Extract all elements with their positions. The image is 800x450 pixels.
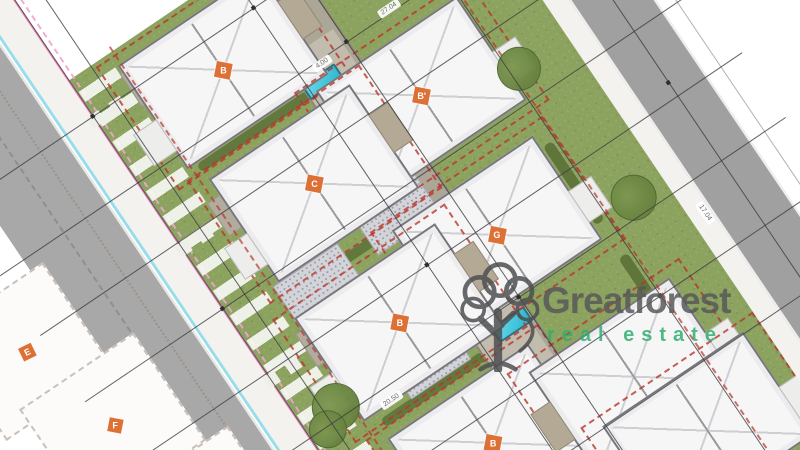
house-label: B [220,65,227,74]
lot-label: E [23,347,32,358]
house-label: B' [417,91,426,100]
oak-tree-icon [452,260,544,372]
tagline-text: real estate [547,324,723,347]
house-label: G [494,230,501,239]
house-label: B [396,318,403,327]
watermark-logo: Greatforest real estate [452,262,752,370]
house-label: B [489,438,496,447]
house-marker: B [390,313,409,332]
house-label: C [311,179,318,188]
house-marker: B [483,434,502,450]
house-marker: C [305,174,324,193]
lot-marker: F [107,417,123,433]
garage [778,371,800,418]
house-marker: B [214,61,233,80]
house-marker: G [488,225,507,244]
house-marker: B' [412,86,431,105]
lot-label: F [113,421,118,430]
brand-text: Greatforest [542,280,730,322]
site-plan-screenshot: B B' C G [0,0,800,450]
rotated-plan-canvas: B B' C G [0,0,800,450]
lot-marker: E [18,343,37,362]
